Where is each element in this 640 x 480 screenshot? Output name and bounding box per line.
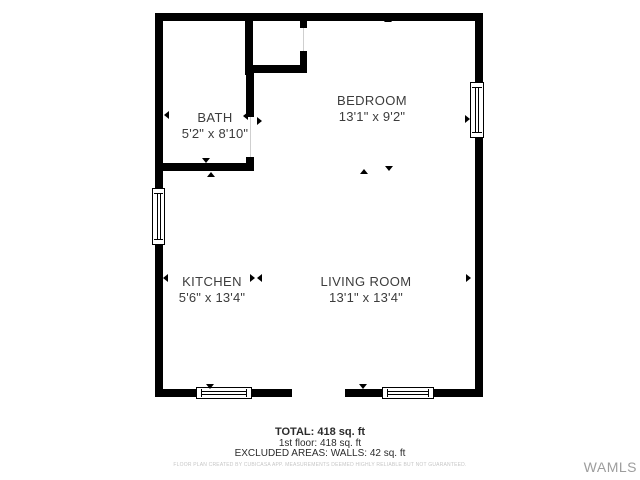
window-marker-icon bbox=[206, 384, 214, 389]
window-left-wall bbox=[152, 188, 165, 245]
window-glass-line bbox=[388, 391, 428, 395]
room-label-living-room: LIVING ROOM 13'1" x 13'4" bbox=[306, 274, 426, 306]
window-marker-icon bbox=[465, 115, 470, 123]
bath-bottom-wall bbox=[155, 163, 254, 171]
room-name: KITCHEN bbox=[162, 274, 262, 290]
window-glass-line bbox=[202, 391, 246, 395]
room-name: BEDROOM bbox=[322, 93, 422, 109]
closet-right-wall bbox=[300, 51, 307, 67]
room-dimensions: 5'6" x 13'4" bbox=[162, 290, 262, 306]
closet-door-opening-line bbox=[303, 28, 304, 51]
closet-bottom-wall bbox=[245, 65, 307, 73]
window-glass-line bbox=[157, 194, 161, 239]
door-marker-icon bbox=[201, 16, 209, 21]
excluded-area-text: EXCLUDED AREAS: WALLS: 42 sq. ft bbox=[0, 448, 640, 459]
door-marker-icon bbox=[207, 172, 215, 177]
disclaimer-text: FLOOR PLAN CREATED BY CUBICASA APP. MEAS… bbox=[0, 462, 640, 468]
floor-plan-page: BATH 5'2" x 8'10" BEDROOM 13'1" x 9'2" K… bbox=[0, 0, 640, 480]
window-bottom-kitchen bbox=[196, 387, 252, 399]
room-label-bedroom: BEDROOM 13'1" x 9'2" bbox=[322, 93, 422, 125]
window-frame-line bbox=[246, 389, 247, 397]
door-marker-icon bbox=[202, 158, 210, 163]
window-right-wall bbox=[470, 82, 484, 138]
room-name: LIVING ROOM bbox=[306, 274, 426, 290]
wall-right bbox=[475, 13, 483, 397]
door-marker-icon bbox=[466, 274, 471, 282]
window-marker-icon bbox=[359, 384, 367, 389]
opening-marker-icon bbox=[360, 169, 368, 174]
window-frame-line bbox=[428, 389, 429, 397]
window-glass-line bbox=[475, 88, 479, 132]
room-dimensions: 13'1" x 13'4" bbox=[306, 290, 426, 306]
room-dimensions: 5'2" x 8'10" bbox=[165, 126, 265, 142]
room-name: BATH bbox=[165, 110, 265, 126]
total-area-text: TOTAL: 418 sq. ft bbox=[0, 426, 640, 438]
room-label-bath: BATH 5'2" x 8'10" bbox=[165, 110, 265, 142]
room-dimensions: 13'1" x 9'2" bbox=[322, 109, 422, 125]
window-frame-line bbox=[154, 239, 163, 240]
closet-door-stub bbox=[300, 21, 307, 28]
wamls-watermark: WAMLS bbox=[584, 459, 637, 475]
window-frame-line bbox=[472, 132, 482, 133]
room-label-kitchen: KITCHEN 5'6" x 13'4" bbox=[162, 274, 262, 306]
window-bottom-living bbox=[382, 387, 434, 399]
door-marker-icon bbox=[384, 17, 392, 22]
opening-marker-icon bbox=[385, 166, 393, 171]
